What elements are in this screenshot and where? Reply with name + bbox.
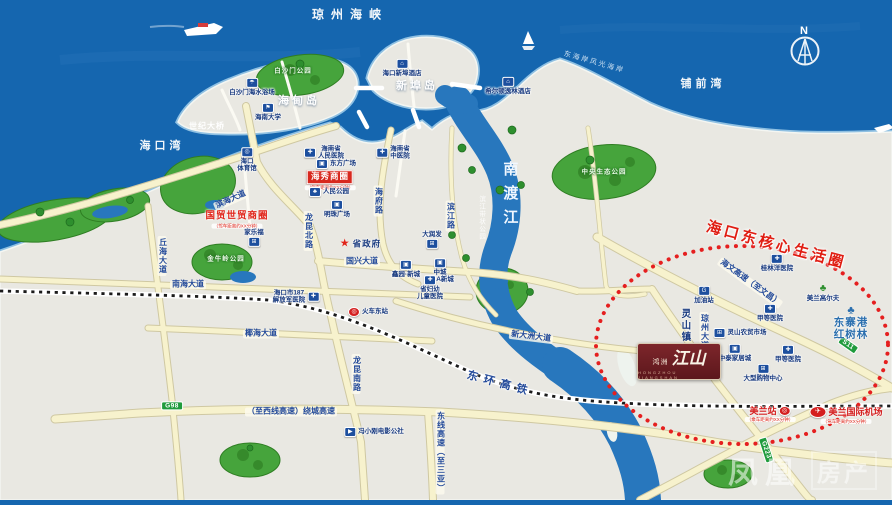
map-canvas	[0, 0, 892, 500]
compass-north-label: N	[800, 25, 808, 37]
project-brand-name: 鸿洲	[653, 357, 669, 367]
project-logo: 鸿洲 江山 HONGZHOU JIANGSHAN	[637, 343, 721, 380]
project-logo-row: 鸿洲 江山	[653, 344, 706, 369]
map	[0, 0, 892, 500]
watermark-phoenix: 凤凰	[728, 448, 802, 492]
phoenix-watermark: 凤凰 房产	[728, 448, 877, 492]
wave-texture	[560, 26, 860, 30]
project-name-en: HONGZHOU JIANGSHAN	[638, 370, 720, 380]
watermark-estate: 房产	[811, 451, 877, 490]
project-name: 江山	[672, 344, 706, 369]
